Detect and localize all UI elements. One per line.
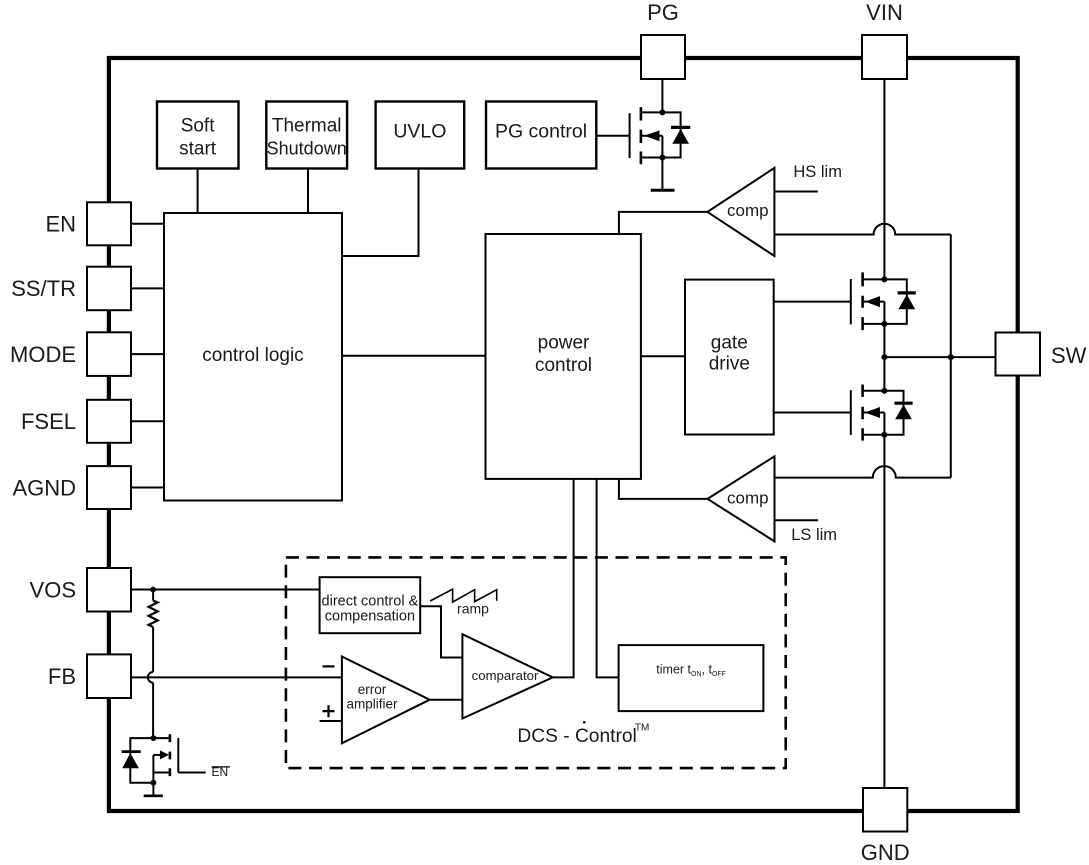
- svg-text:power: power: [538, 332, 590, 353]
- svg-text:ramp: ramp: [457, 601, 489, 617]
- svg-text:VIN: VIN: [866, 0, 903, 25]
- svg-text:drive: drive: [709, 354, 750, 375]
- svg-text:LS lim: LS lim: [791, 526, 837, 544]
- svg-text:FSEL: FSEL: [21, 409, 76, 434]
- svg-text:AGND: AGND: [12, 475, 76, 500]
- svg-text:start: start: [179, 138, 217, 159]
- svg-text:PG: PG: [647, 0, 679, 25]
- svg-text:gate: gate: [711, 332, 748, 353]
- svg-text:SS/TR: SS/TR: [11, 276, 76, 301]
- svg-text:comp: comp: [727, 489, 769, 508]
- svg-text:MODE: MODE: [10, 342, 76, 367]
- svg-text:direct control &: direct control &: [322, 594, 419, 610]
- svg-text:control logic: control logic: [202, 345, 303, 366]
- svg-text:error: error: [358, 682, 387, 697]
- svg-text:UVLO: UVLO: [393, 121, 446, 143]
- svg-text:amplifier: amplifier: [346, 697, 398, 712]
- svg-text:comparator: comparator: [472, 668, 539, 683]
- svg-text:comp: comp: [727, 201, 769, 220]
- svg-text:SW: SW: [1051, 343, 1087, 368]
- svg-text:Thermal: Thermal: [272, 116, 342, 137]
- svg-text:compensation: compensation: [325, 609, 415, 625]
- svg-text:Shutdown: Shutdown: [267, 138, 347, 158]
- svg-text:FB: FB: [48, 664, 76, 689]
- svg-text:PG control: PG control: [495, 120, 587, 142]
- svg-text:TM: TM: [635, 723, 649, 734]
- svg-text:Soft: Soft: [181, 116, 216, 137]
- svg-text:VOS: VOS: [30, 578, 76, 603]
- svg-text:DCS - Control: DCS - Control: [517, 726, 636, 747]
- svg-text:EN: EN: [45, 212, 76, 237]
- svg-text:GND: GND: [861, 840, 910, 865]
- svg-text:control: control: [535, 355, 592, 376]
- svg-text:HS lim: HS lim: [793, 163, 842, 181]
